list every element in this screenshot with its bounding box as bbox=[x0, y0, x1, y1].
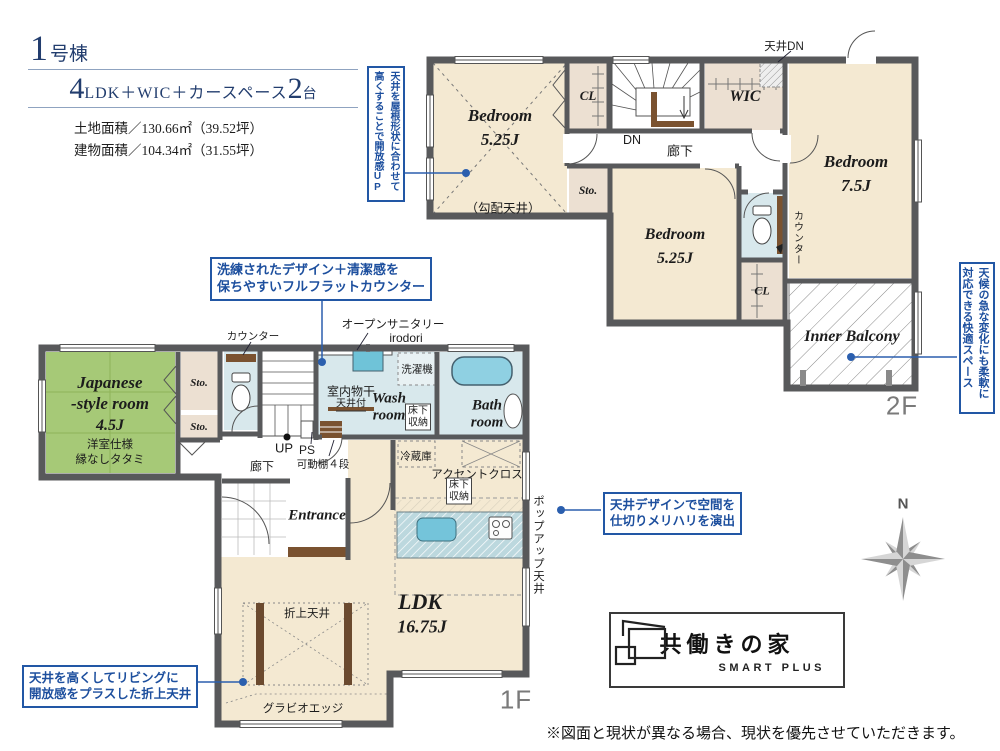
coffered-ceiling-label: 折上天井 bbox=[284, 605, 330, 621]
indoor-drying-sub-label: 天井付 bbox=[336, 395, 366, 412]
building-number: 1 bbox=[30, 28, 48, 68]
plan-type: 4LDK＋WIC＋カースペース2台 bbox=[28, 70, 358, 108]
room-label-bedroom2: Bedroom bbox=[645, 226, 705, 244]
ps-label: PS bbox=[299, 443, 315, 457]
callout-line: 開放感をプラスした折上天井 bbox=[29, 686, 191, 702]
fridge-label: 冷蔵庫 bbox=[400, 449, 432, 464]
room-label-wash-2: room bbox=[373, 408, 406, 425]
ceiling-dn-label: 天井DN bbox=[764, 38, 804, 54]
callout-line: 天井デザインで空間を bbox=[610, 497, 735, 513]
callout-line: 天井を高くしてリビングに bbox=[29, 670, 191, 686]
room-label-japanese-2: -style room bbox=[71, 394, 149, 414]
callout-line: 天井を屋根形状に合わせて bbox=[385, 71, 401, 197]
plan-car-count: 2 bbox=[288, 72, 303, 105]
room-size-bedroom3: 7.5J bbox=[841, 176, 871, 196]
compass-north-label: N bbox=[898, 496, 909, 513]
room-label-wash-1: Wash bbox=[372, 391, 406, 408]
room-label-wic: WIC bbox=[729, 88, 760, 106]
room-label-sto-1: Sto. bbox=[190, 377, 207, 389]
callout-line: 仕切りメリハリを演出 bbox=[610, 513, 735, 529]
brand-logo: 共働きの家 SMART PLUS bbox=[609, 612, 845, 688]
callout-line: 天候の急な変化にも柔軟に bbox=[975, 267, 991, 409]
room-label-entrance: Entrance bbox=[288, 508, 346, 525]
building-title: 1号棟 bbox=[28, 30, 358, 70]
counter-label-1f: カウンター bbox=[227, 329, 280, 344]
building-area: 建物面積／104.34㎡（31.55坪） bbox=[74, 140, 358, 162]
callout-flat-counter: 洗練されたデザイン＋清潔感を 保ちやすいフルフラットカウンター bbox=[210, 257, 432, 301]
plan-header: 1号棟 4LDK＋WIC＋カースペース2台 土地面積／130.66㎡（39.52… bbox=[28, 30, 358, 161]
land-area: 土地面積／130.66㎡（39.52坪） bbox=[74, 118, 358, 140]
floor-plan-flyer: 1号棟 4LDK＋WIC＋カースペース2台 土地面積／130.66㎡（39.52… bbox=[0, 0, 1000, 751]
washer-label: 洗濯機 bbox=[401, 362, 433, 377]
plan-ldk-text: LDK＋WIC＋カースペース bbox=[84, 85, 287, 102]
room-label-bath-2: room bbox=[471, 415, 504, 432]
counter-label-2f: カウンター bbox=[790, 211, 805, 266]
movable-shelf-label: 可動棚４段 bbox=[297, 457, 350, 472]
room-size-ldk: 16.75J bbox=[397, 617, 447, 638]
open-sanitary-sub-label: irodori bbox=[389, 331, 422, 345]
plan-ldk-count: 4 bbox=[69, 72, 84, 105]
floor-label-2f: 2F bbox=[886, 391, 918, 422]
room-label-bedroom3: Bedroom bbox=[824, 152, 888, 172]
callout-line: 保ちやすいフルフラットカウンター bbox=[217, 279, 425, 296]
compass-icon bbox=[861, 517, 945, 601]
stairs-dn-label: DN bbox=[623, 133, 641, 147]
callout-line: 洗練されたデザイン＋清潔感を bbox=[217, 262, 425, 279]
area-info: 土地面積／130.66㎡（39.52坪） 建物面積／104.34㎡（31.55坪… bbox=[28, 118, 358, 161]
room-label-corridor-1f: 廊下 bbox=[250, 458, 274, 475]
room-label-inner-balcony: Inner Balcony bbox=[804, 328, 900, 346]
callout-ceiling-design: 天井デザインで空間を 仕切りメリハリを演出 bbox=[603, 492, 742, 535]
japanese-room-note-2: 縁なしタタミ bbox=[76, 451, 145, 467]
callout-inner-balcony: 天候の急な変化にも柔軟に 対応できる快適スペース bbox=[959, 262, 995, 414]
room-size-bedroom1: 5.25J bbox=[481, 130, 519, 150]
japanese-room-note-1: 洋室仕様 bbox=[87, 436, 133, 452]
callout-line: 高くすることで開放感UP bbox=[369, 71, 385, 197]
underfloor-storage-label-1: 床下 収納 bbox=[405, 404, 431, 431]
popup-ceiling-label: ポップアップ天井 bbox=[530, 495, 546, 595]
brand-logo-icon bbox=[611, 614, 673, 668]
stairs-up-label: UP bbox=[275, 441, 293, 456]
underfloor-storage-label-2: 床下 収納 bbox=[446, 478, 472, 505]
room-label-sto-2: Sto. bbox=[190, 421, 207, 433]
room-label-japanese-1: Japanese bbox=[77, 373, 142, 393]
plan-car-unit: 台 bbox=[303, 87, 317, 102]
room-label-sto-2f: Sto. bbox=[579, 185, 597, 197]
room-label-corridor-2f: 廊下 bbox=[667, 141, 693, 160]
callout-sloped-ceiling: 天井を屋根形状に合わせて 高くすることで開放感UP bbox=[367, 66, 405, 202]
room-size-japanese: 4.5J bbox=[96, 417, 124, 435]
room-label-bedroom1: Bedroom bbox=[468, 106, 532, 126]
floor-label-1f: 1F bbox=[500, 685, 532, 716]
disclaimer-text: ※図面と現状が異なる場合、現状を優先させていただきます。 bbox=[546, 722, 965, 743]
room-label-ldk: LDK bbox=[398, 589, 442, 615]
room-label-cl-top: CL bbox=[580, 88, 597, 104]
room-label-cl-mid: CL bbox=[754, 284, 769, 299]
callout-coffered-ceiling: 天井を高くしてリビングに 開放感をプラスした折上天井 bbox=[22, 665, 198, 708]
callout-line: 対応できる快適スペース bbox=[959, 267, 975, 409]
building-unit: 号棟 bbox=[50, 44, 88, 65]
room-label-bath-1: Bath bbox=[472, 398, 502, 415]
open-sanitary-label: オープンサニタリー bbox=[342, 316, 445, 332]
room-size-bedroom2: 5.25J bbox=[657, 250, 693, 268]
room-note-sloped-ceiling: （勾配天井） bbox=[465, 198, 540, 217]
gravio-edge-label: グラビオエッジ bbox=[263, 700, 344, 716]
accent-cloth-label: アクセントクロス bbox=[431, 466, 522, 482]
